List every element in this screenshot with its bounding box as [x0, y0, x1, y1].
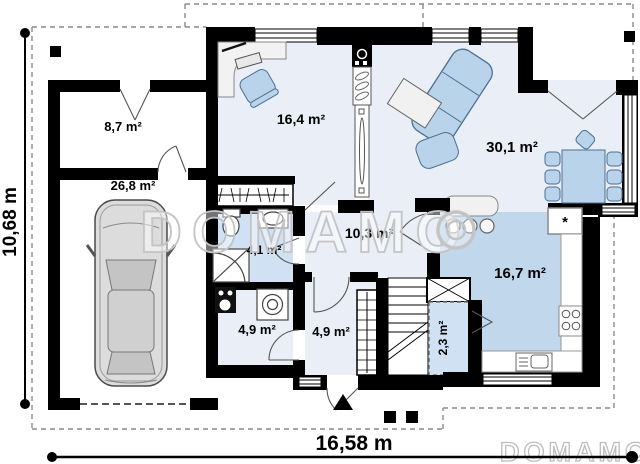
dimension-vertical: 10,68 m — [0, 28, 30, 409]
kitchen-sink-icon — [516, 353, 552, 371]
watermark-text-bottom: DOMAMO — [500, 437, 640, 464]
stove-icon — [559, 306, 582, 336]
room-label-garage: 26,8 m² — [111, 178, 156, 193]
window-living-2 — [481, 29, 518, 42]
dining-table — [562, 150, 605, 203]
room-label-living: 30,1 m² — [486, 139, 538, 156]
dimension-width-label: 16,58 m — [315, 432, 392, 455]
window-office — [255, 29, 317, 42]
floor-plan-graphics: * — [0, 0, 640, 464]
porch-column — [406, 411, 418, 423]
watermark-circle-icon — [438, 212, 474, 248]
boiler-icon — [215, 287, 236, 313]
room-label-pantry: 2,3 m² — [436, 321, 450, 356]
fireplace-strip — [352, 45, 372, 197]
window-dining-bottom — [602, 205, 635, 215]
vestibule-wardrobe — [357, 290, 377, 375]
floor-plan: * — [0, 0, 640, 464]
window-dining-side — [624, 95, 637, 203]
watermark-center: DOMAMO — [140, 200, 474, 265]
room-label-office: 16,4 m² — [277, 111, 326, 127]
room-label-utility: 4,9 m² — [238, 322, 276, 337]
room-label-kitchen: 16,7 m² — [494, 265, 546, 282]
terrace-notch — [531, 27, 638, 80]
window-kitchen — [483, 374, 552, 385]
washing-machine-icon — [257, 289, 288, 320]
fridge-star: * — [562, 214, 568, 231]
window-vestibule — [299, 377, 321, 387]
cupboard-x — [427, 278, 470, 302]
window-living-1 — [432, 29, 469, 42]
watermark-text-center: DOMAMO — [140, 200, 471, 265]
storage-garage-door — [158, 146, 186, 172]
storage-outer-door — [120, 89, 150, 120]
porch-column — [384, 411, 396, 423]
room-label-storage: 8,7 m² — [104, 119, 142, 134]
staircase — [388, 278, 428, 375]
room-label-vestibule: 4,9 m² — [312, 324, 350, 339]
dimension-height-label: 10,68 m — [0, 187, 21, 257]
